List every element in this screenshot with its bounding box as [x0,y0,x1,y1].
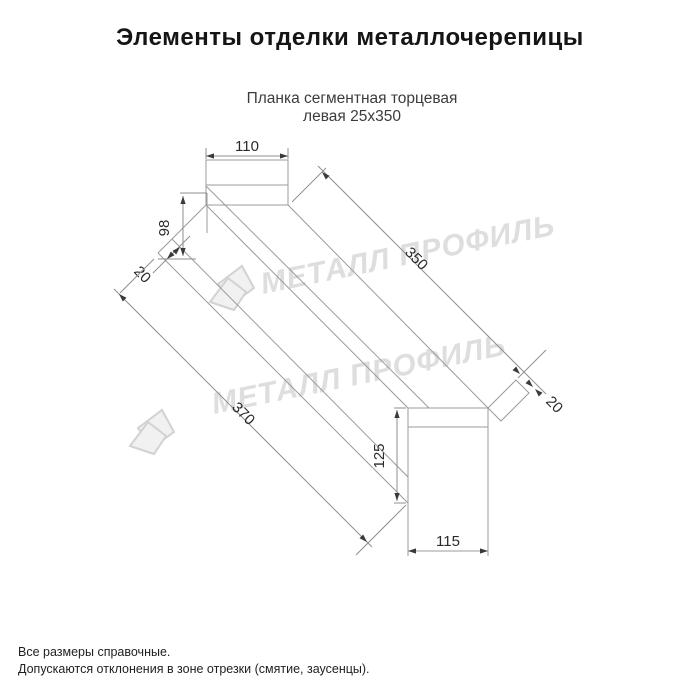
dim-arrow [173,247,181,255]
watermark-text: МЕТАЛЛ ПРОФИЛЬ [209,329,509,421]
dim-20-far: 20 [526,380,567,417]
footnote-line1: Все размеры справочные. [18,644,370,661]
dim-arrow [535,389,543,397]
dim-arrow [394,493,399,501]
dim-125-ext [394,408,406,503]
dim-arrow [206,153,214,158]
far-end-extension-ticks [408,551,488,556]
dim-20-near-label: 20 [130,263,154,287]
dim-arrow [408,548,416,553]
dim-350-ext-far [518,350,546,378]
dim-110: 110 [206,138,288,159]
footnotes: Все размеры справочные. Допускаются откл… [18,644,370,678]
near-end-profile [158,160,288,253]
dim-98: 98 [156,193,207,259]
dim-125: 125 [371,408,406,503]
dim-arrow [180,196,185,204]
dim-arrow [526,380,534,388]
technical-drawing: МЕТАЛЛ ПРОФИЛЬ МЕТАЛЛ ПРОФИЛЬ 110 [0,0,700,700]
dim-arrow [513,367,521,375]
metall-profil-logo-icon [210,266,254,310]
dim-20-near: 20 [130,236,190,287]
far-end-face [408,408,488,551]
dim-115-label: 115 [436,533,460,550]
dim-110-label: 110 [235,138,259,155]
dim-20-far-label: 20 [542,393,566,417]
dim-98-label: 98 [156,220,173,237]
dim-350-ext-near [292,168,326,202]
metall-profil-logo-icon [130,410,174,454]
far-end-hem-flap [488,380,529,421]
watermark-lower: МЕТАЛЛ ПРОФИЛЬ [130,329,509,454]
dim-arrow [280,153,288,158]
dim-arrow [394,410,399,418]
far-end-profile [408,380,529,556]
dim-arrow [480,548,488,553]
screenshot-root: { "page": { "title": "Элементы отделки м… [0,0,700,700]
dim-370-ext-far [356,505,406,555]
dim-125-label: 125 [371,443,388,468]
footnote-line2: Допускаются отклонения в зоне отрезки (с… [18,661,370,678]
watermark-upper: МЕТАЛЛ ПРОФИЛЬ [210,209,558,310]
